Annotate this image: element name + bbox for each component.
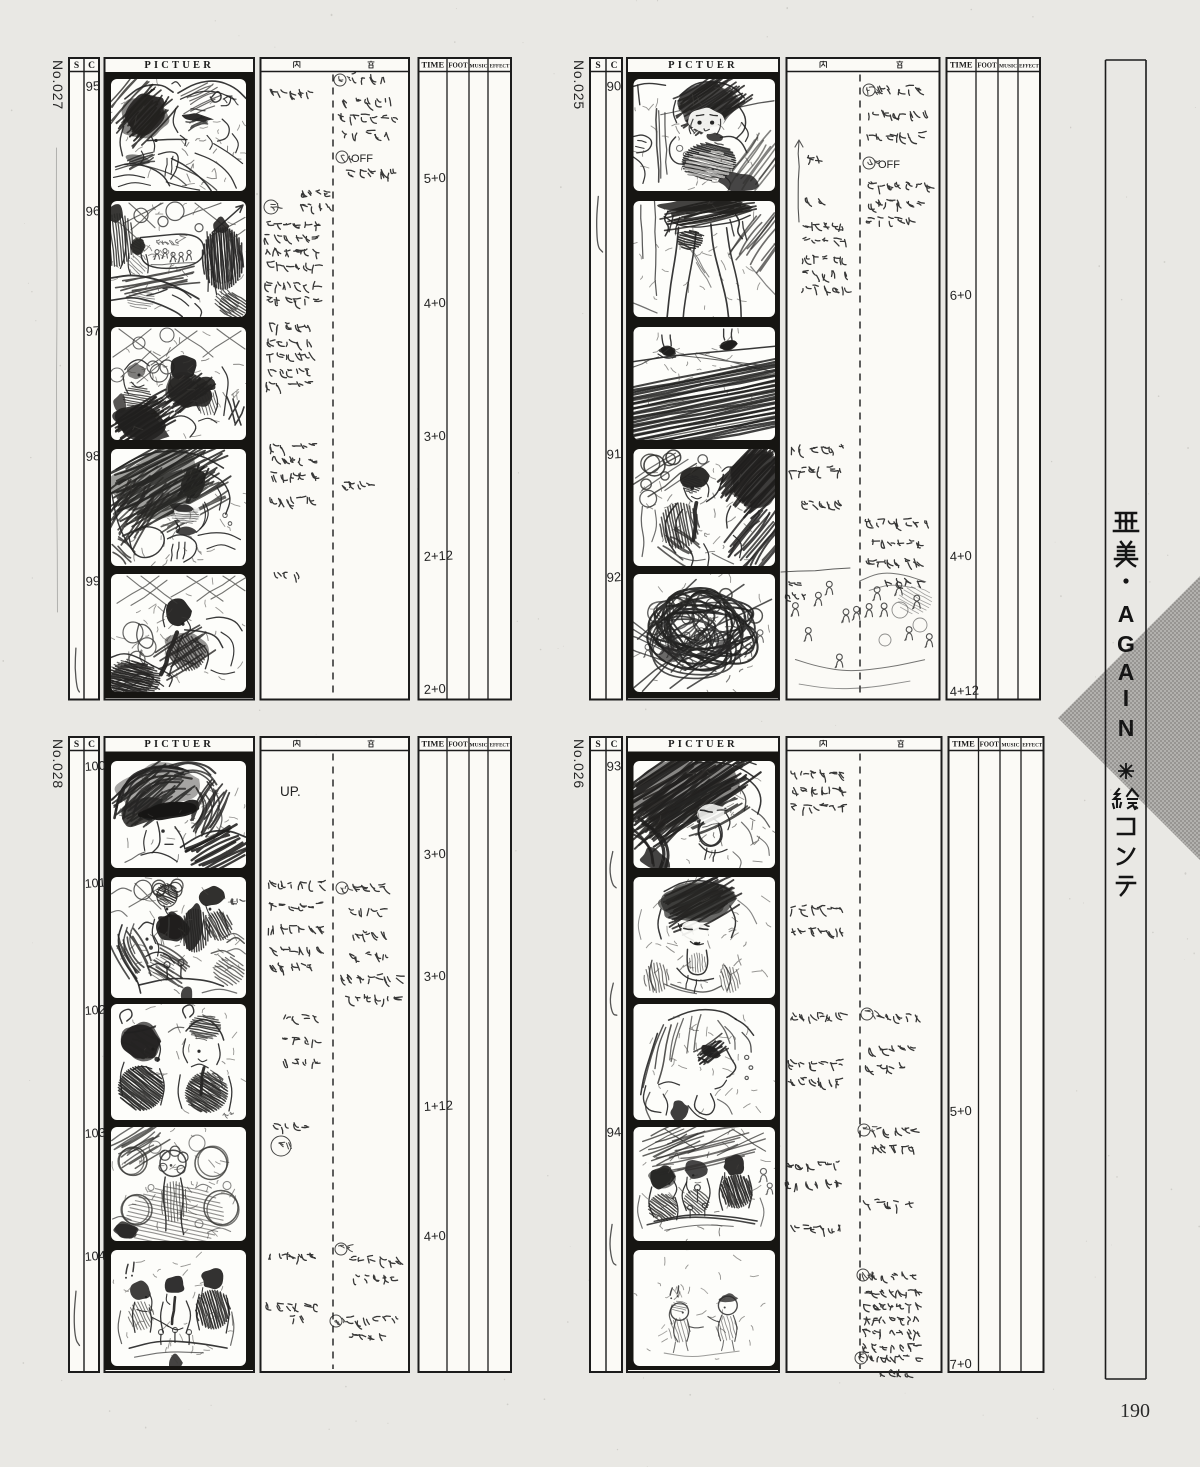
svg-text:N: N xyxy=(1118,715,1135,741)
svg-text:No.025: No.025 xyxy=(571,60,587,110)
svg-text:190: 190 xyxy=(1120,1400,1150,1422)
svg-text:No.028: No.028 xyxy=(50,739,66,789)
svg-text:99: 99 xyxy=(85,573,100,589)
svg-text:TIME: TIME xyxy=(950,60,973,70)
svg-text:3+0: 3+0 xyxy=(423,968,446,984)
svg-text:A: A xyxy=(1118,659,1135,685)
svg-text:FOOT: FOOT xyxy=(448,742,468,749)
svg-text:6+0: 6+0 xyxy=(949,287,972,303)
svg-text:98: 98 xyxy=(85,448,100,464)
svg-text:C: C xyxy=(88,740,95,750)
svg-text:7+0: 7+0 xyxy=(949,1356,972,1372)
svg-text:90: 90 xyxy=(606,78,621,94)
svg-text:2+0: 2+0 xyxy=(423,681,446,697)
svg-text:93: 93 xyxy=(606,758,621,774)
svg-text:PICTUER: PICTUER xyxy=(144,739,214,750)
svg-text:OFF: OFF xyxy=(878,159,900,171)
svg-text:4+12: 4+12 xyxy=(949,682,979,699)
svg-text:PICTUER: PICTUER xyxy=(668,739,738,750)
svg-text:No.026: No.026 xyxy=(571,739,587,789)
svg-text:TIME: TIME xyxy=(421,739,444,749)
svg-text:EFFECT: EFFECT xyxy=(1022,744,1042,749)
svg-text:100: 100 xyxy=(84,759,106,774)
svg-text:5+0: 5+0 xyxy=(949,1103,972,1119)
svg-text:I: I xyxy=(1123,685,1129,711)
svg-text:EFFECT: EFFECT xyxy=(490,65,510,70)
svg-text:C: C xyxy=(88,61,95,71)
svg-text:MUSIC: MUSIC xyxy=(1002,743,1020,749)
svg-text:PICTUER: PICTUER xyxy=(668,60,738,71)
svg-text:A: A xyxy=(1118,601,1135,627)
svg-text:EFFECT: EFFECT xyxy=(1019,65,1039,70)
svg-text:S: S xyxy=(74,61,79,71)
svg-text:5+0: 5+0 xyxy=(423,170,446,186)
svg-text:TIME: TIME xyxy=(952,739,975,749)
svg-text:3+0: 3+0 xyxy=(423,846,446,862)
svg-text:92: 92 xyxy=(606,569,621,585)
svg-text:C: C xyxy=(611,740,618,750)
svg-text:104: 104 xyxy=(84,1249,106,1264)
svg-text:MUSIC: MUSIC xyxy=(999,64,1017,70)
svg-text:1+12: 1+12 xyxy=(423,1097,453,1114)
svg-text:TIME: TIME xyxy=(421,60,444,70)
svg-text:G: G xyxy=(1117,631,1135,657)
svg-text:OFF: OFF xyxy=(351,153,373,165)
svg-text:3+0: 3+0 xyxy=(423,428,446,444)
svg-text:97: 97 xyxy=(85,323,100,339)
svg-text:4+0: 4+0 xyxy=(949,548,972,564)
svg-text:FOOT: FOOT xyxy=(977,63,997,70)
svg-text:MUSIC: MUSIC xyxy=(470,743,488,749)
svg-text:101: 101 xyxy=(84,876,106,891)
svg-text:4+0: 4+0 xyxy=(423,1228,446,1244)
svg-text:FOOT: FOOT xyxy=(980,742,1000,749)
svg-text:No.027: No.027 xyxy=(50,60,66,110)
svg-text:UP.: UP. xyxy=(280,784,301,799)
svg-text:95: 95 xyxy=(85,78,100,94)
svg-text:S: S xyxy=(595,740,600,750)
svg-text:EFFECT: EFFECT xyxy=(490,744,510,749)
svg-text:S: S xyxy=(74,740,79,750)
svg-text:91: 91 xyxy=(606,446,621,462)
svg-text:MUSIC: MUSIC xyxy=(470,64,488,70)
svg-text:PICTUER: PICTUER xyxy=(144,60,214,71)
svg-text:94: 94 xyxy=(606,1124,621,1140)
svg-text:4+0: 4+0 xyxy=(423,295,446,311)
svg-text:C: C xyxy=(611,61,618,71)
svg-text:96: 96 xyxy=(85,203,100,219)
svg-text:FOOT: FOOT xyxy=(448,63,468,70)
svg-text:103: 103 xyxy=(84,1126,106,1141)
svg-text:2+12: 2+12 xyxy=(423,547,453,564)
svg-text:S: S xyxy=(595,61,600,71)
svg-text:102: 102 xyxy=(84,1003,106,1018)
